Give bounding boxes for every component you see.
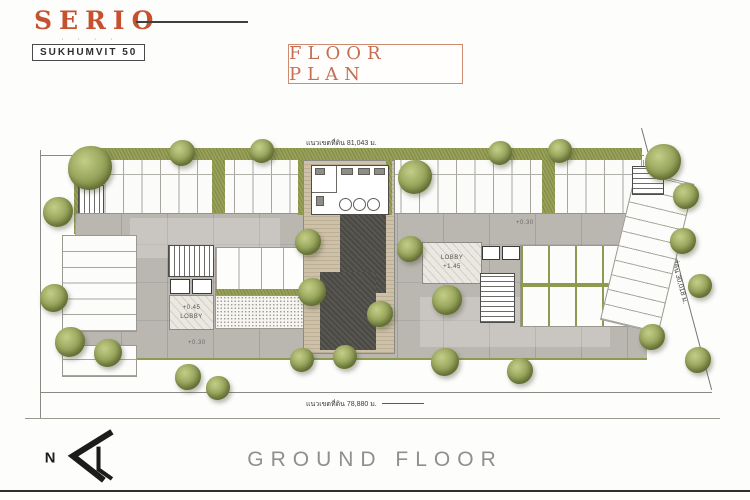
tree-icon	[290, 348, 314, 372]
tree-icon	[507, 358, 533, 384]
logo-dots: · · · ·	[36, 36, 144, 43]
tree-icon	[40, 284, 68, 312]
header-rule	[136, 21, 248, 23]
trees-layer	[30, 112, 720, 432]
floor-plan-title-box: FLOOR PLAN	[288, 44, 463, 84]
tree-icon	[685, 347, 711, 373]
logo-subtitle: SUKHUMVIT 50	[32, 44, 145, 61]
floor-caption: GROUND FLOOR	[0, 448, 750, 472]
tree-icon	[645, 144, 681, 180]
tree-icon	[175, 364, 201, 390]
tree-icon	[295, 229, 321, 255]
tree-icon	[367, 301, 393, 327]
tree-icon	[432, 285, 462, 315]
tree-icon	[670, 228, 696, 254]
tree-icon	[298, 278, 326, 306]
tree-icon	[431, 348, 459, 376]
page-title: FLOOR PLAN	[289, 43, 462, 85]
footer-rule	[0, 490, 750, 492]
tree-icon	[206, 376, 230, 400]
tree-icon	[333, 345, 357, 369]
tree-icon	[488, 141, 512, 165]
tree-icon	[68, 146, 112, 190]
tree-icon	[250, 139, 274, 163]
tree-icon	[639, 324, 665, 350]
tree-icon	[397, 236, 423, 262]
floor-plan-page: SERIO · · · · SUKHUMVIT 50 FLOOR PLAN แน…	[0, 0, 750, 500]
tree-icon	[94, 339, 122, 367]
tree-icon	[688, 274, 712, 298]
tree-icon	[55, 327, 85, 357]
site-plan: แนวเขตที่ดิน 81,043 ม. แนวเขตที่ดิน 78,8…	[30, 112, 720, 432]
tree-icon	[673, 183, 699, 209]
tree-icon	[43, 197, 73, 227]
tree-icon	[548, 139, 572, 163]
tree-icon	[169, 140, 195, 166]
tree-icon	[398, 160, 432, 194]
